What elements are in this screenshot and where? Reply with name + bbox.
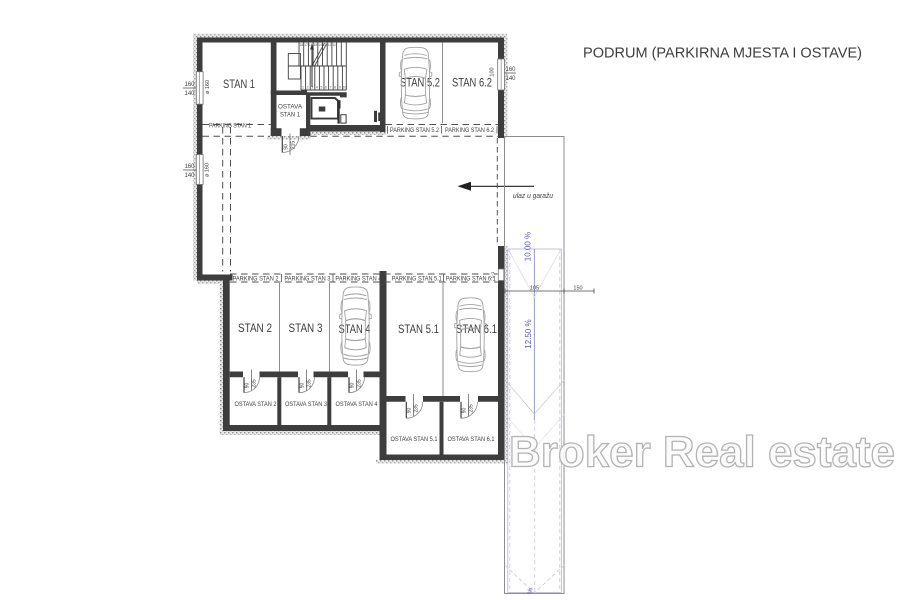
svg-text:11: 11 bbox=[332, 43, 336, 47]
svg-text:ulaz u garažu: ulaz u garažu bbox=[513, 191, 554, 200]
svg-text:160: 160 bbox=[184, 82, 195, 88]
svg-text:90: 90 bbox=[462, 408, 468, 414]
svg-text:13: 13 bbox=[323, 43, 327, 47]
svg-text:OSTAVA STAN 6.1: OSTAVA STAN 6.1 bbox=[448, 436, 495, 443]
svg-text:OSTAVA: OSTAVA bbox=[278, 104, 303, 111]
svg-text:3: 3 bbox=[311, 86, 313, 90]
svg-text:90: 90 bbox=[284, 144, 290, 150]
svg-text:PARKING STAN 6.1: PARKING STAN 6.1 bbox=[446, 275, 496, 282]
svg-text:215: 215 bbox=[291, 141, 297, 150]
svg-text:8: 8 bbox=[334, 86, 336, 90]
svg-text:235: 235 bbox=[357, 379, 363, 388]
svg-text:18: 18 bbox=[299, 43, 303, 47]
svg-text:100: 100 bbox=[490, 67, 496, 76]
svg-text:15: 15 bbox=[314, 43, 318, 47]
svg-text:6: 6 bbox=[325, 86, 327, 90]
svg-text:12: 12 bbox=[328, 43, 332, 47]
svg-text:140: 140 bbox=[505, 76, 516, 82]
svg-text:Broker Real estate: Broker Real estate bbox=[509, 428, 895, 477]
svg-text:STAN 5.2: STAN 5.2 bbox=[400, 78, 440, 90]
svg-text:OSTAVA STAN 4: OSTAVA STAN 4 bbox=[336, 401, 378, 408]
svg-text:12.50 %: 12.50 % bbox=[524, 319, 533, 348]
svg-text:STAN 2: STAN 2 bbox=[238, 323, 272, 335]
svg-text:STAN 1: STAN 1 bbox=[223, 79, 255, 91]
svg-text:10.00 %: 10.00 % bbox=[524, 232, 533, 261]
svg-text:STAN 5.1: STAN 5.1 bbox=[398, 324, 439, 336]
svg-text:PARKING STAN 6.2: PARKING STAN 6.2 bbox=[445, 127, 494, 134]
svg-text:PARKING STAN 5.2: PARKING STAN 5.2 bbox=[390, 127, 439, 134]
svg-text:9: 9 bbox=[339, 86, 341, 90]
svg-text:17: 17 bbox=[304, 43, 308, 47]
svg-text:90: 90 bbox=[350, 383, 356, 389]
svg-text:STAN 3: STAN 3 bbox=[289, 323, 323, 335]
svg-text:5: 5 bbox=[320, 86, 322, 90]
svg-text:105: 105 bbox=[530, 286, 539, 292]
svg-text:2: 2 bbox=[307, 86, 309, 90]
svg-text:STAN 6.1: STAN 6.1 bbox=[456, 324, 497, 336]
svg-text:OSTAVA STAN 5.1: OSTAVA STAN 5.1 bbox=[391, 436, 438, 443]
svg-text:14: 14 bbox=[318, 43, 322, 47]
svg-text:140: 140 bbox=[184, 173, 195, 179]
svg-text:PODRUM (PARKIRNA MJESTA I OSTA: PODRUM (PARKIRNA MJESTA I OSTAVE) bbox=[583, 45, 862, 62]
svg-text:7: 7 bbox=[330, 86, 332, 90]
svg-text:235: 235 bbox=[252, 379, 258, 388]
svg-text:235: 235 bbox=[414, 404, 420, 413]
svg-text:STAN 4: STAN 4 bbox=[339, 324, 371, 336]
svg-text:PARKING STAN 1: PARKING STAN 1 bbox=[209, 123, 251, 130]
svg-text:90: 90 bbox=[407, 408, 413, 414]
svg-text:%: % bbox=[528, 588, 535, 594]
svg-text:140: 140 bbox=[184, 91, 195, 97]
svg-text:PARKING STAN 5.1: PARKING STAN 5.1 bbox=[392, 275, 442, 282]
svg-text:PARKING STAN 3: PARKING STAN 3 bbox=[284, 275, 330, 282]
svg-text:1: 1 bbox=[302, 86, 304, 90]
svg-text:90: 90 bbox=[245, 383, 251, 389]
svg-text:160: 160 bbox=[505, 67, 516, 73]
svg-text:ø 160: ø 160 bbox=[205, 163, 211, 177]
svg-text:150: 150 bbox=[573, 286, 582, 292]
svg-text:235: 235 bbox=[469, 404, 475, 413]
svg-text:ø 160: ø 160 bbox=[205, 80, 211, 94]
svg-text:90: 90 bbox=[300, 383, 306, 389]
svg-text:160: 160 bbox=[184, 164, 195, 170]
svg-text:10: 10 bbox=[343, 86, 347, 90]
svg-text:OSTAVA STAN 2: OSTAVA STAN 2 bbox=[235, 401, 277, 408]
svg-text:16: 16 bbox=[309, 43, 313, 47]
svg-text:STAN 1: STAN 1 bbox=[280, 112, 300, 119]
svg-text:OSTAVA STAN 3: OSTAVA STAN 3 bbox=[285, 401, 327, 408]
svg-text:STAN 6.2: STAN 6.2 bbox=[452, 78, 492, 90]
svg-text:PARKING STAN 4: PARKING STAN 4 bbox=[335, 275, 381, 282]
svg-text:4: 4 bbox=[316, 86, 318, 90]
svg-text:235: 235 bbox=[307, 379, 313, 388]
svg-text:PARKING STAN 2: PARKING STAN 2 bbox=[233, 275, 279, 282]
